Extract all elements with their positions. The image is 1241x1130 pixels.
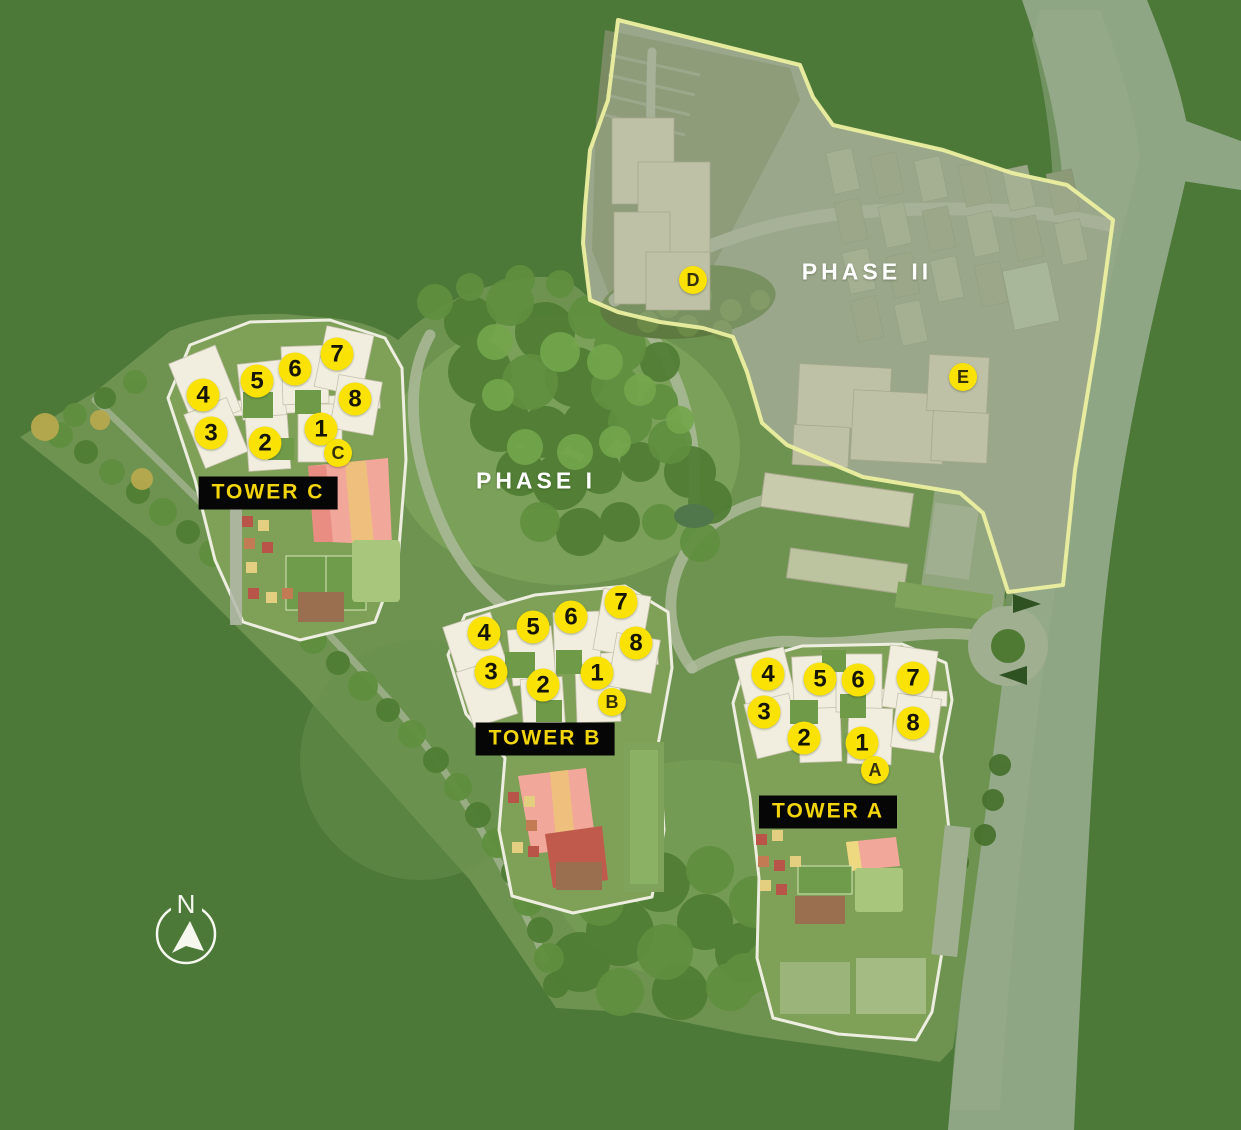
tower-a-unit-marker-3[interactable]: 3 — [748, 696, 781, 729]
tower-c-unit-marker-3[interactable]: 3 — [195, 417, 228, 450]
tower-c-unit-marker-8[interactable]: 8 — [339, 383, 372, 416]
tower-b-unit-marker-1[interactable]: 1 — [581, 657, 614, 690]
tower-c-unit-marker-7[interactable]: 7 — [321, 338, 354, 371]
phase-2-label: PHASE II — [802, 259, 932, 286]
tower-a-unit-marker-2[interactable]: 2 — [788, 722, 821, 755]
tower-c-unit-marker-2[interactable]: 2 — [249, 427, 282, 460]
tower-c-entry-marker[interactable]: C — [324, 439, 352, 467]
tower-b-label: TOWER B — [476, 723, 615, 756]
tower-c-unit-marker-6[interactable]: 6 — [279, 353, 312, 386]
tower-c-unit-marker-4[interactable]: 4 — [187, 379, 220, 412]
site-plan: N PHASE I PHASE II TOWER C12345678CTOWER… — [0, 0, 1241, 1130]
tower-a-unit-marker-1[interactable]: 1 — [846, 727, 879, 760]
phase-marker-e[interactable]: E — [949, 363, 977, 391]
tower-b-entry-marker[interactable]: B — [598, 688, 626, 716]
tower-a-unit-marker-5[interactable]: 5 — [804, 663, 837, 696]
tower-b-unit-marker-8[interactable]: 8 — [620, 627, 653, 660]
tower-b-unit-marker-5[interactable]: 5 — [517, 611, 550, 644]
tower-a-unit-marker-7[interactable]: 7 — [897, 662, 930, 695]
tower-b-unit-marker-4[interactable]: 4 — [468, 617, 501, 650]
compass-north-letter: N — [177, 889, 196, 919]
phase-1-label: PHASE I — [476, 468, 596, 495]
tower-b-unit-marker-2[interactable]: 2 — [527, 669, 560, 702]
tower-a-label: TOWER A — [759, 796, 897, 829]
tower-a-unit-marker-4[interactable]: 4 — [752, 658, 785, 691]
phase-marker-d[interactable]: D — [679, 266, 707, 294]
tower-c-unit-marker-5[interactable]: 5 — [241, 365, 274, 398]
tower-b-unit-marker-6[interactable]: 6 — [555, 601, 588, 634]
terrain-artwork: N — [0, 0, 1241, 1130]
tower-a-unit-marker-8[interactable]: 8 — [897, 707, 930, 740]
tower-c-label: TOWER C — [199, 477, 338, 510]
tower-a-entry-marker[interactable]: A — [861, 756, 889, 784]
tower-a-unit-marker-6[interactable]: 6 — [842, 664, 875, 697]
tower-b-unit-marker-7[interactable]: 7 — [605, 586, 638, 619]
tower-b-unit-marker-3[interactable]: 3 — [475, 656, 508, 689]
